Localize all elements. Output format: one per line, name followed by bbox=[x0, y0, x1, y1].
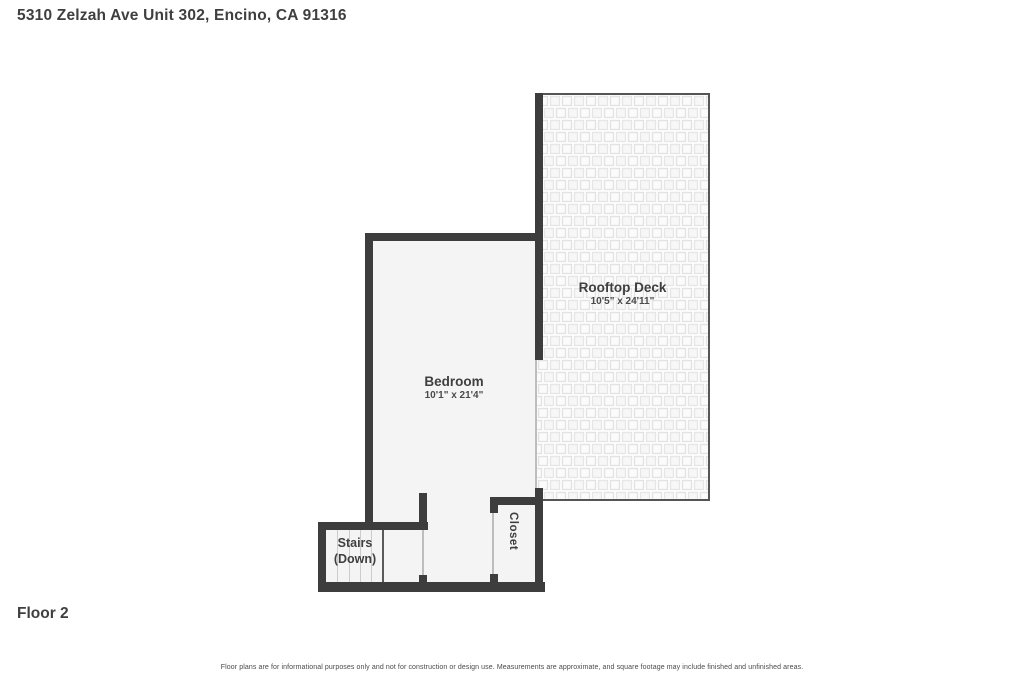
wall-closet-stub-top bbox=[490, 497, 498, 513]
wall-bedroom-left bbox=[365, 233, 373, 530]
stairs-name-line1: Stairs bbox=[322, 536, 388, 552]
stairs-label: Stairs (Down) bbox=[322, 536, 388, 567]
bedroom-label: Bedroom 10'1" x 21'4" bbox=[373, 373, 535, 402]
disclaimer-text: Floor plans are for informational purpos… bbox=[0, 664, 1024, 671]
rooftop-deck-label: Rooftop Deck 10'5" x 24'11" bbox=[535, 279, 710, 308]
stairs-name-line2: (Down) bbox=[322, 552, 388, 568]
wall-hall-stub bbox=[419, 493, 427, 530]
rooftop-deck-name: Rooftop Deck bbox=[535, 279, 710, 296]
deck-slider-door-line bbox=[535, 360, 537, 488]
wall-deck-left-upper bbox=[535, 93, 543, 360]
rooftop-deck-dimensions: 10'5" x 24'11" bbox=[535, 296, 710, 308]
hall-door-line bbox=[422, 530, 424, 575]
wall-bottom bbox=[318, 582, 545, 592]
bedroom-dimensions: 10'1" x 21'4" bbox=[373, 390, 535, 402]
floor-number-label: Floor 2 bbox=[17, 605, 69, 623]
wall-bedroom-top bbox=[365, 233, 543, 241]
wall-closet-stub-bottom bbox=[490, 574, 498, 587]
wall-stairs-top bbox=[318, 522, 428, 530]
property-address: 5310 Zelzah Ave Unit 302, Encino, CA 913… bbox=[17, 7, 347, 25]
bedroom-name: Bedroom bbox=[373, 373, 535, 390]
closet-label: Closet bbox=[507, 512, 519, 576]
floor-plan-page: 5310 Zelzah Ave Unit 302, Encino, CA 913… bbox=[0, 0, 1024, 683]
closet-door-line bbox=[492, 513, 494, 574]
